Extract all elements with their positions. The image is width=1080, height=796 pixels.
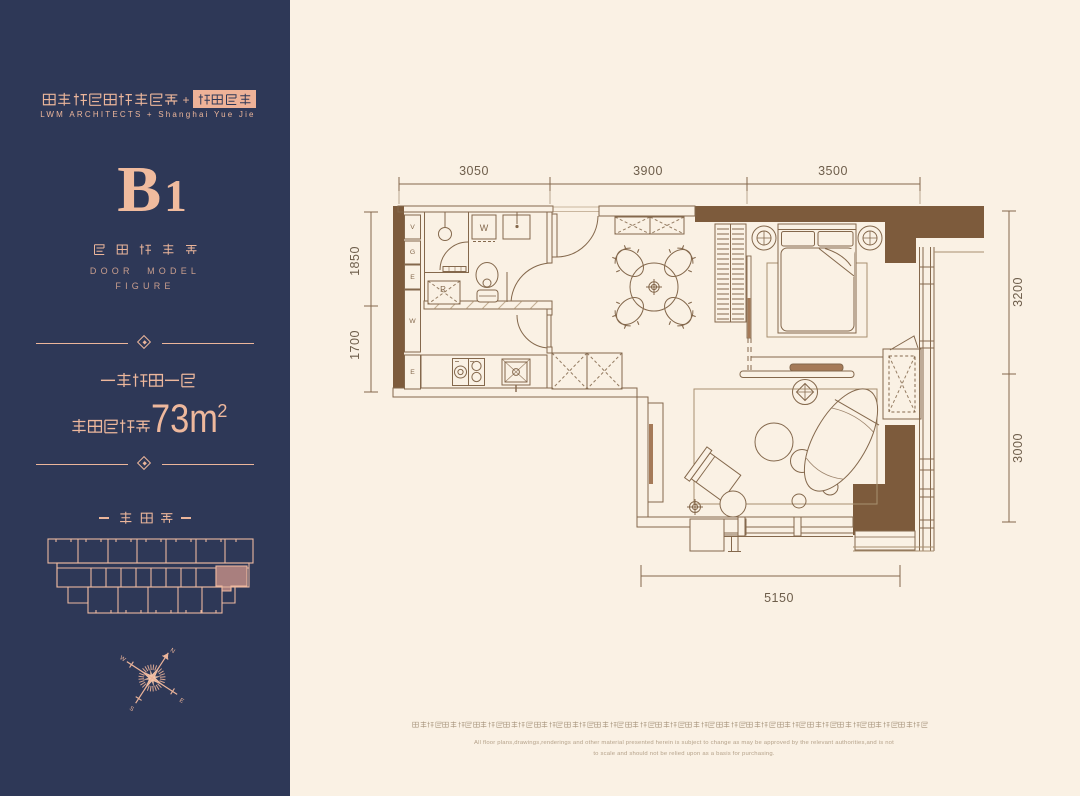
svg-text:G: G bbox=[410, 249, 415, 256]
svg-text:3000: 3000 bbox=[1011, 433, 1025, 463]
svg-text:W: W bbox=[409, 318, 416, 325]
svg-text:R: R bbox=[440, 285, 446, 294]
svg-text:1850: 1850 bbox=[348, 246, 362, 276]
svg-text:3500: 3500 bbox=[818, 164, 848, 178]
svg-text:E: E bbox=[410, 369, 415, 376]
svg-text:3200: 3200 bbox=[1011, 277, 1025, 307]
svg-text:5150: 5150 bbox=[764, 591, 794, 605]
svg-text:3900: 3900 bbox=[633, 164, 663, 178]
svg-text:W: W bbox=[480, 223, 489, 233]
svg-text:3050: 3050 bbox=[459, 164, 489, 178]
svg-text:1700: 1700 bbox=[348, 330, 362, 360]
svg-text:E: E bbox=[410, 274, 415, 281]
svg-text:V: V bbox=[410, 224, 415, 231]
